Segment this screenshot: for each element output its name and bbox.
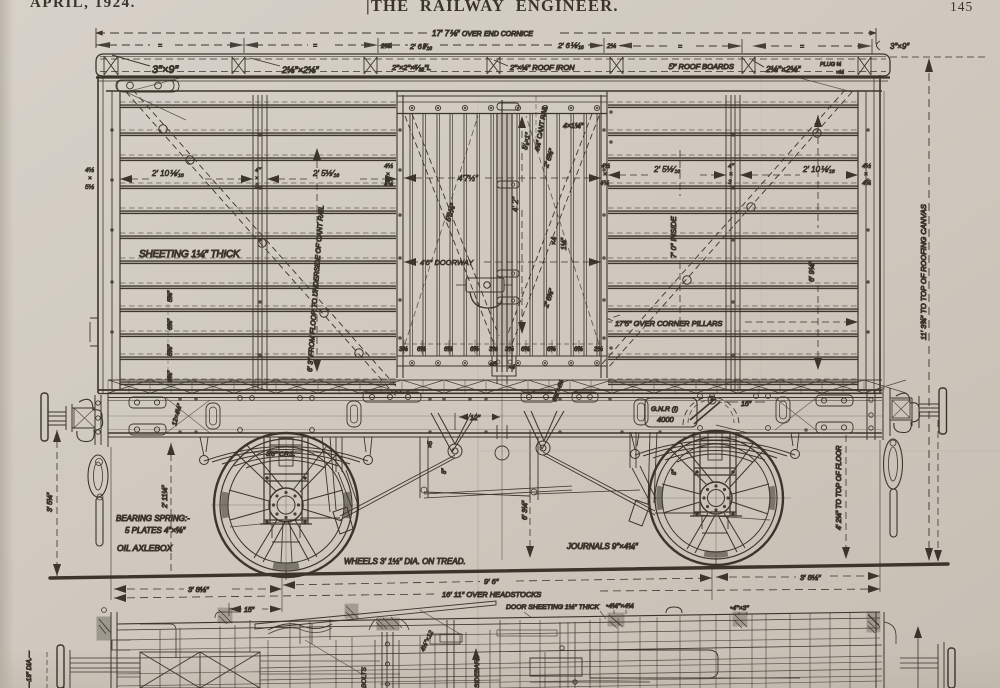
svg-text:4¼: 4¼ [384,181,394,188]
svg-text:4′6″ DOORWAY: 4′6″ DOORWAY [420,258,474,267]
svg-text:APRIL, 1924.: APRIL, 1924. [30,0,136,11]
svg-text:4′ 2¼″ TO TOP OF FLOOR: 4′ 2¼″ TO TOP OF FLOOR [836,446,843,530]
svg-text:4′7½″: 4′7½″ [458,174,479,183]
svg-text:×: × [603,171,607,178]
svg-text:2′ 10⅙⁄₁₆: 2′ 10⅙⁄₁₆ [151,169,185,178]
svg-text:2⅛: 2⅛ [380,43,391,50]
svg-text:4½: 4½ [862,162,872,170]
svg-text:|THE RAILWAY ENGINEER.: |THE RAILWAY ENGINEER. [366,0,619,15]
svg-text:2′ 11¼″: 2′ 11¼″ [162,485,169,509]
svg-text:3′ 8½″: 3′ 8½″ [188,585,209,594]
svg-text:4000: 4000 [657,415,675,424]
svg-text:PLUG ¼: PLUG ¼ [820,62,842,68]
svg-text:BOLTS: BOLTS [361,667,368,688]
svg-text:×: × [255,175,259,182]
svg-text:=: = [800,44,804,51]
svg-text:OIL AXLEBOX: OIL AXLEBOX [117,543,173,553]
svg-text:11′ 3¾″ TO TOP OF ROOFING CANV: 11′ 3¾″ TO TOP OF ROOFING CANVAS [919,204,928,340]
svg-text:3″×9″: 3″×9″ [152,64,180,76]
svg-text:8″: 8″ [672,469,678,475]
svg-text:12″: 12″ [470,415,481,422]
svg-text:BEARING SPRING:-: BEARING SPRING:- [116,514,190,523]
svg-text:=: = [158,43,162,50]
svg-text:2′ 5⅓⁄₁₆: 2′ 5⅓⁄₁₆ [653,165,681,174]
svg-text:17′ 7⅙″ OVER END CORNICE: 17′ 7⅙″ OVER END CORNICE [432,29,533,38]
svg-text:3′ 5¼″: 3′ 5¼″ [47,492,54,512]
svg-text:2″×¼″ ROOF IRON: 2″×¼″ ROOF IRON [509,63,575,72]
svg-text:4½: 4½ [85,166,95,174]
svg-text:×4: ×4 [508,365,516,371]
svg-text:1¼″: 1¼″ [561,237,568,250]
svg-text:3″×9″: 3″×9″ [890,42,910,51]
svg-text:×4: ×4 [551,237,558,245]
svg-text:17′5″ OVER CORNER PILLARS: 17′5″ OVER CORNER PILLARS [615,319,722,328]
svg-text:2′ 10⅙⁄₁₆: 2′ 10⅙⁄₁₆ [802,165,836,174]
svg-text:3: 3 [728,179,732,186]
svg-text:3⅜: 3⅜ [594,346,603,353]
svg-text:4¼: 4¼ [600,180,610,187]
svg-text:2⅛″×2⅛″: 2⅛″×2⅛″ [281,65,319,75]
svg-text:2⅛: 2⅛ [606,43,617,50]
svg-text:WHEELS 3′ 1½″ DIA. ON TREAD.: WHEELS 3′ 1½″ DIA. ON TREAD. [344,557,466,566]
svg-text:•4″×3″: •4″×3″ [730,605,749,612]
svg-text:JOURNALS 9″×4¼″: JOURNALS 9″×4¼″ [566,542,639,551]
svg-text:5½: 5½ [85,183,95,191]
svg-text:4′ 2″: 4′ 2″ [511,195,520,212]
svg-text:3: 3 [255,183,259,190]
svg-text:×: × [386,171,390,178]
svg-text:15″: 15″ [244,607,255,614]
svg-text:6′ 3¼″: 6′ 3¼″ [522,500,529,520]
svg-text:=: = [678,44,682,51]
svg-text:=: = [313,43,317,50]
svg-text:2′ 6Ⅱ⁄₁₆: 2′ 6Ⅱ⁄₁₆ [409,42,432,51]
svg-text:4½: 4½ [601,162,611,170]
svg-text:SHEETING 1¼″ THICK: SHEETING 1¼″ THICK [139,248,241,260]
svg-text:4½: 4½ [384,162,394,170]
svg-text:DOOR SHEETING 1½″ THICK: DOOR SHEETING 1½″ THICK [506,603,600,611]
svg-text:145: 145 [950,0,973,14]
svg-text:2⅛″×2⅛″: 2⅛″×2⅛″ [765,64,802,74]
svg-text:SIDEBARS: SIDEBARS [474,654,481,688]
svg-text:9′ 6″: 9′ 6″ [484,577,499,586]
svg-text:16′ 11″ OVER HEADSTOCKS: 16′ 11″ OVER HEADSTOCKS [442,590,541,599]
svg-text:2′ 5⅓⁄₁₆: 2′ 5⅓⁄₁₆ [312,169,340,178]
svg-text:4″: 4″ [255,167,262,174]
svg-text:×: × [864,171,868,178]
svg-text:6′ 9¼″: 6′ 9¼″ [807,261,816,282]
svg-text:×: × [729,171,733,178]
svg-text:×: × [88,175,92,182]
svg-text:2″×2″×⁵⁄₁₆″L: 2″×2″×⁵⁄₁₆″L [391,63,431,72]
svg-text:•4¼″×4¼: •4¼″×4¼ [606,603,634,610]
svg-text:8″: 8″ [442,468,448,474]
svg-text:5 PLATES 4″×⅝″: 5 PLATES 4″×⅝″ [125,526,187,535]
svg-text:4¼: 4¼ [862,180,872,187]
svg-text:×5: ×5 [428,440,434,448]
svg-text:7′ 0″ INSIDE: 7′ 0″ INSIDE [669,215,678,258]
svg-text:3′ 8½″: 3′ 8½″ [800,573,821,582]
svg-text:2′ 6⅙⁄₁₆: 2′ 6⅙⁄₁₆ [557,41,584,50]
svg-text:4×1¼″: 4×1¼″ [563,123,584,130]
svg-text:G.N.R (I): G.N.R (I) [651,406,678,413]
svg-text:15″: 15″ [741,401,752,408]
svg-text:⅁″ ROOF BOARDS: ⅁″ ROOF BOARDS [668,62,734,71]
svg-text:4″: 4″ [728,163,735,170]
svg-text:—13″ DIA.—: —13″ DIA.— [26,651,33,688]
svg-text:×¼: ×¼ [836,70,844,76]
